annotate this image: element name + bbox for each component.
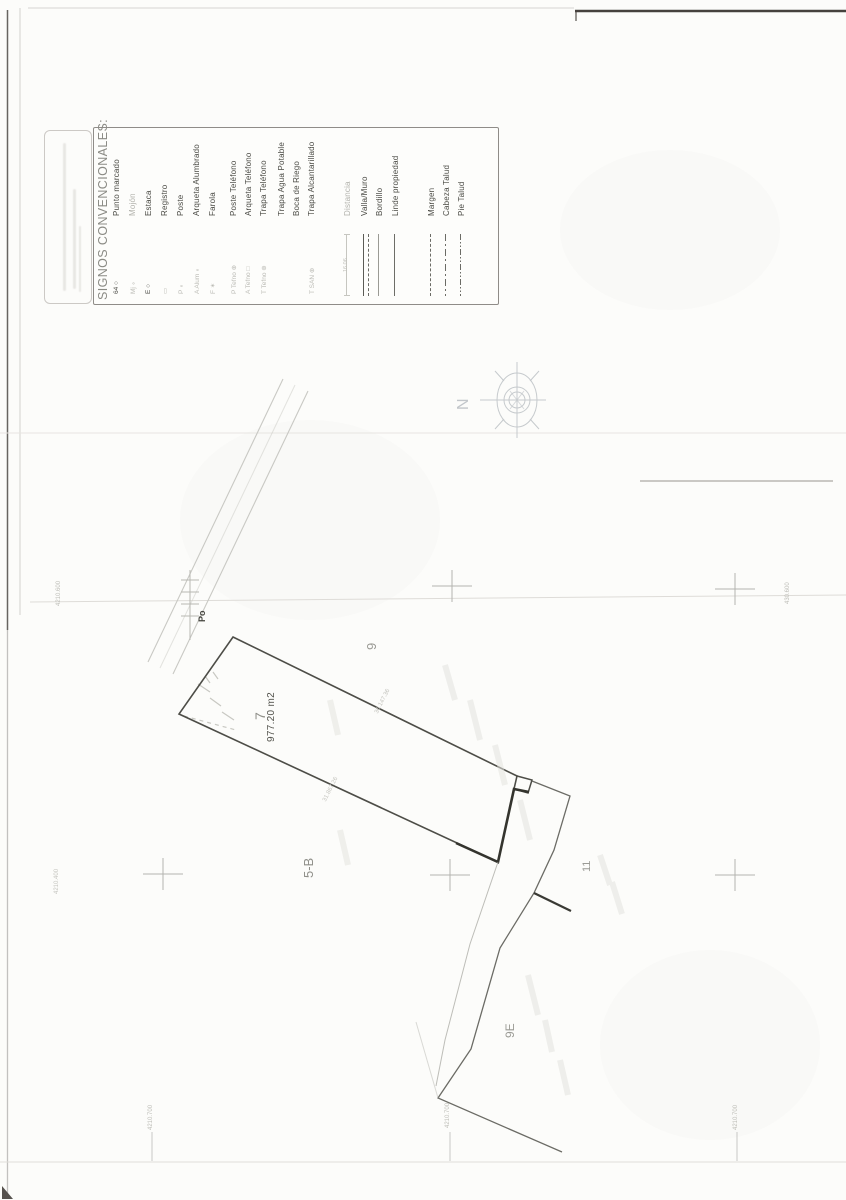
legend-entry-label: Estaca — [144, 190, 153, 216]
plot-9-label: 9 — [364, 643, 379, 650]
legend-line-symbol-distance: 16.06 — [346, 234, 347, 296]
fence-ladder-symbol — [181, 570, 199, 640]
legend-entry-symbol: P Tefno ⊕ — [230, 265, 238, 294]
legend-entry-label: Valla/Muro — [360, 176, 369, 216]
boundary-9e-line — [416, 1022, 438, 1098]
legend-entry-label: Boca de Riego — [292, 161, 301, 216]
legend-entry-label: Linde propiedad — [391, 156, 400, 216]
north-letter: N — [455, 398, 473, 410]
legend-box: SIGNOS CONVENCIONALES: Punto marcado64 ○… — [93, 127, 499, 305]
grid-crosses — [143, 570, 755, 1161]
scanned-plan-page: SIGNOS CONVENCIONALES: Punto marcado64 ○… — [0, 0, 846, 1200]
legend-entry-symbol: ▭ — [161, 288, 169, 294]
legend-entry-label: Distancia — [343, 181, 352, 216]
plot-11-label: 11 — [581, 861, 593, 872]
legend-entry-label: Margen — [427, 188, 436, 216]
plot-5b-label: 5-B — [301, 858, 316, 878]
legend-entry-label: Farola — [208, 192, 217, 216]
compass-rose — [480, 362, 546, 438]
legend-entry-symbol: T SAN ⊕ — [308, 268, 316, 294]
sketch-dashes — [184, 672, 236, 730]
legend-entry-symbol: T Tefno ⊕ — [260, 265, 268, 294]
legend-entry-label: Trapa Teléfono — [259, 160, 268, 216]
legend-entry-label: Trapa Agua Potable — [277, 142, 286, 216]
fold-lines — [0, 433, 846, 1162]
illegible-stamp-text — [73, 189, 76, 289]
coordinate-label-left-mid: 4210.400 — [54, 869, 60, 894]
legend-entry-symbol: F ✶ — [209, 283, 217, 294]
legend-line-symbol-linde — [394, 234, 395, 296]
legend-entry-label: Arqueta Alumbrado — [192, 144, 201, 216]
legend-entry-label: Registro — [160, 185, 169, 216]
legend-entry-label: Poste — [176, 195, 185, 216]
legend-line-symbol-margen — [430, 234, 431, 296]
coordinate-label-left-top: 4210.600 — [56, 581, 62, 606]
legend-entry-symbol: 64 ○ — [113, 281, 120, 294]
road-label: Po — [197, 610, 207, 622]
parcel-7-outline — [179, 637, 532, 862]
wall-spur — [534, 893, 571, 911]
legend-entry-symbol: A Alum ∘ — [193, 268, 201, 294]
legend-entry-label: Bordillo — [375, 188, 384, 216]
parcel-wall-thick — [456, 789, 529, 862]
road-lines — [148, 379, 308, 674]
legend-line-symbol-cabeza — [445, 234, 446, 296]
plot-9e-label: 9E — [503, 1023, 517, 1038]
legend-entry-label: Poste Teléfono — [229, 160, 238, 216]
legend-line-symbol-valla — [363, 234, 369, 296]
legend-title: SIGNOS CONVENCIONALES: — [96, 119, 110, 300]
legend-entry-label: Mojón — [128, 193, 137, 216]
legend-line-symbol-bordillo — [378, 234, 379, 296]
legend-entry-label: Trapa Alcantarillado — [307, 142, 316, 216]
strip-11-lines — [416, 781, 571, 1152]
legend-entry-label: Arqueta Teléfono — [244, 152, 253, 216]
legend-entry-label: Punto marcado — [112, 159, 121, 216]
legend-entry-symbol: P ∘ — [177, 284, 185, 294]
legend-distance-value: 16.06 — [343, 258, 349, 272]
legend-entry-symbol: Mj ∘ — [129, 281, 137, 294]
legend-entry-symbol: A Tefno □ — [245, 267, 252, 294]
coordinate-label-bottom-right: 4210.700 — [733, 1105, 739, 1130]
parcel-7-area: 977.20 m2 — [266, 692, 277, 742]
legend-entry-label: Cabeza Talud — [442, 165, 451, 216]
strip-left-edge — [436, 862, 498, 1086]
illegible-stamp-text — [63, 143, 66, 291]
faint-stamp-box — [44, 130, 92, 304]
coordinate-label-right-top: 430.600 — [785, 582, 791, 604]
legend-entry-label: Pie Talud — [457, 181, 466, 216]
legend-entry-symbol: E ○ — [145, 284, 152, 294]
coordinate-label-bottom-left: 4210.700 — [148, 1105, 154, 1130]
legend-line-symbol-pie — [460, 234, 461, 296]
illegible-stamp-text — [79, 226, 81, 292]
coordinate-label-bottom-center: 4210.700 — [445, 1103, 451, 1128]
